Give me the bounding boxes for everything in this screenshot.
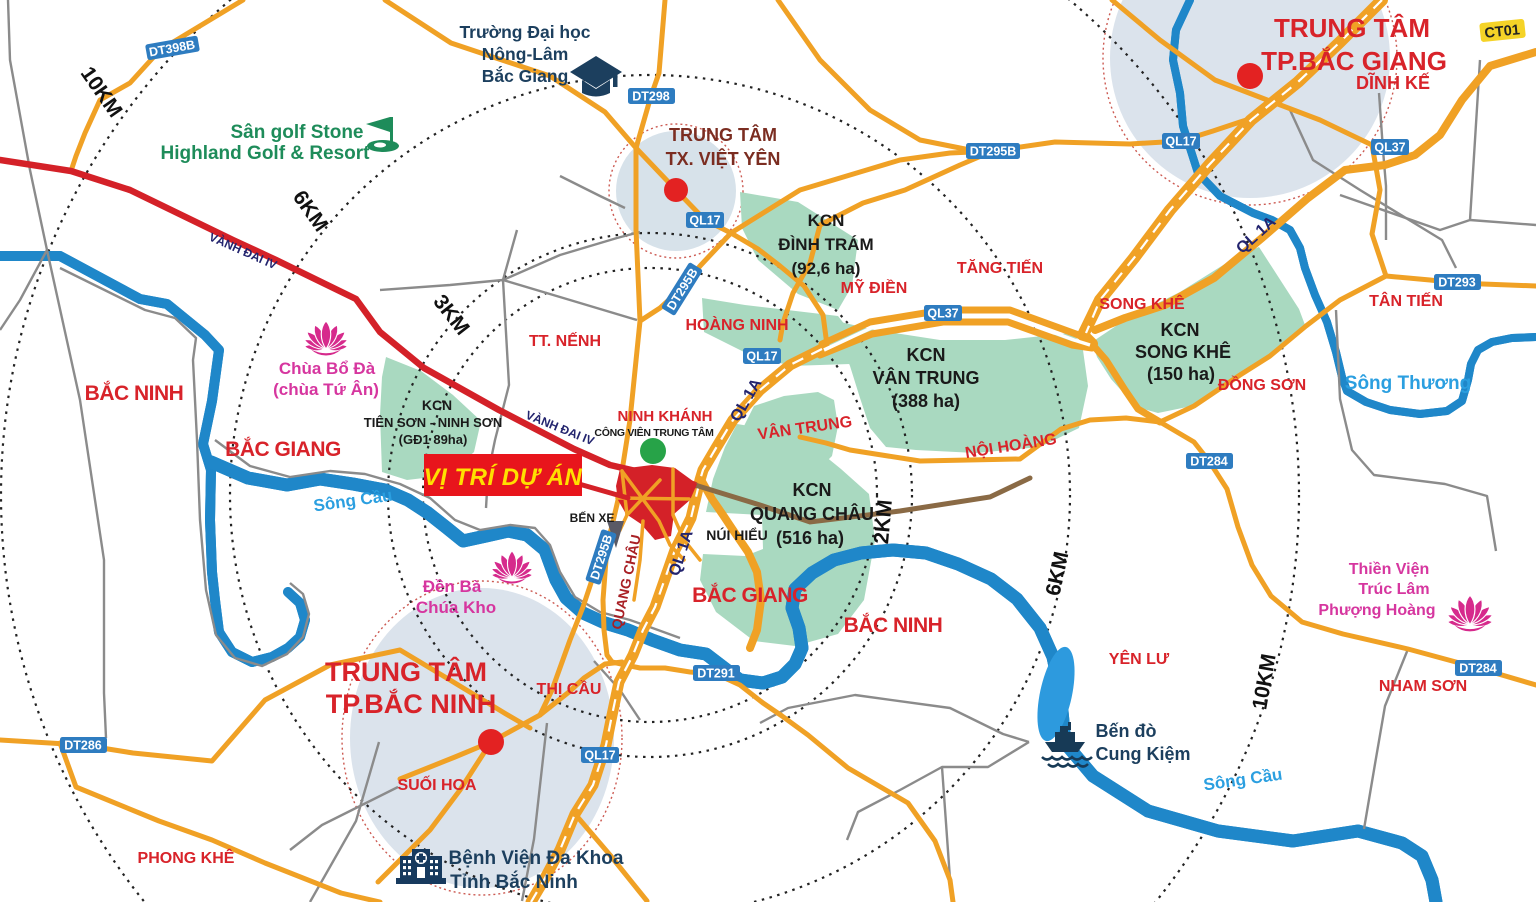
svg-text:TIÊN SƠN - NINH SƠN: TIÊN SƠN - NINH SƠN: [364, 415, 502, 430]
svg-text:Thiền Viện: Thiền Viện: [1349, 561, 1430, 578]
svg-text:BẾN XE: BẾN XE: [570, 510, 615, 525]
svg-text:Bắc Giang: Bắc Giang: [482, 65, 569, 86]
svg-text:MỸ ĐIỀN: MỸ ĐIỀN: [841, 277, 908, 297]
svg-text:Sông Thương: Sông Thương: [1345, 373, 1471, 394]
svg-text:QL37: QL37: [927, 307, 958, 321]
svg-text:SONG KHÊ: SONG KHÊ: [1135, 341, 1231, 362]
svg-text:Sân golf Stone: Sân golf Stone: [231, 122, 364, 143]
svg-text:BẮC GIANG: BẮC GIANG: [225, 437, 341, 461]
svg-text:Bến đò: Bến đò: [1096, 721, 1157, 741]
svg-text:QUANG CHÂU: QUANG CHÂU: [750, 503, 874, 524]
svg-text:BẮC NINH: BẮC NINH: [85, 381, 184, 405]
svg-text:DT284: DT284: [1459, 662, 1497, 676]
svg-text:TP.BẮC GIANG: TP.BẮC GIANG: [1261, 46, 1447, 76]
svg-text:Phượng Hoàng: Phượng Hoàng: [1318, 602, 1435, 619]
svg-text:TP.BẮC NINH: TP.BẮC NINH: [326, 688, 497, 719]
svg-text:TRUNG TÂM: TRUNG TÂM: [325, 656, 487, 687]
svg-text:ĐỒNG SƠN: ĐỒNG SƠN: [1218, 375, 1306, 394]
svg-text:TĂNG TIẾN: TĂNG TIẾN: [957, 258, 1043, 277]
svg-text:QL37: QL37: [1374, 141, 1405, 155]
svg-text:SONG KHÊ: SONG KHÊ: [1099, 294, 1185, 313]
svg-text:DT284: DT284: [1190, 455, 1228, 469]
svg-text:PHONG KHÊ: PHONG KHÊ: [138, 848, 235, 867]
svg-text:(GĐ1 89ha): (GĐ1 89ha): [399, 432, 468, 447]
svg-text:Chùa Bổ Đà: Chùa Bổ Đà: [279, 359, 376, 378]
svg-text:TX. VIỆT YÊN: TX. VIỆT YÊN: [666, 148, 781, 169]
svg-text:ĐÌNH TRÁM: ĐÌNH TRÁM: [778, 235, 873, 254]
svg-text:CÔNG VIÊN TRUNG TÂM: CÔNG VIÊN TRUNG TÂM: [594, 426, 714, 439]
svg-text:QL17: QL17: [689, 214, 720, 228]
svg-text:THỊ CẦU: THỊ CẦU: [537, 679, 602, 698]
svg-text:Đền Bà: Đền Bà: [423, 577, 482, 596]
svg-text:KCN: KCN: [1161, 320, 1200, 340]
svg-text:Bệnh Viện Đa Khoa: Bệnh Viện Đa Khoa: [449, 848, 624, 869]
svg-text:(388 ha): (388 ha): [892, 391, 960, 411]
svg-text:(150 ha): (150 ha): [1147, 364, 1215, 384]
svg-text:HOÀNG NINH: HOÀNG NINH: [685, 315, 788, 334]
svg-text:DT291: DT291: [697, 667, 735, 681]
svg-text:2KM: 2KM: [870, 499, 897, 545]
svg-text:QL17: QL17: [584, 749, 615, 763]
svg-text:(516 ha): (516 ha): [776, 528, 844, 548]
svg-text:Tỉnh Bắc Ninh: Tỉnh Bắc Ninh: [450, 871, 578, 893]
svg-text:NÚI HIỂU: NÚI HIỂU: [706, 526, 767, 543]
svg-text:KCN: KCN: [907, 345, 946, 365]
svg-text:VÂN TRUNG: VÂN TRUNG: [873, 367, 980, 388]
svg-text:TRUNG TÂM: TRUNG TÂM: [669, 124, 777, 145]
svg-text:Chúa Kho: Chúa Kho: [416, 598, 496, 617]
svg-text:VỊ TRÍ DỰ ÁN: VỊ TRÍ DỰ ÁN: [424, 463, 583, 491]
svg-text:Trường Đại học: Trường Đại học: [459, 22, 590, 42]
svg-text:SUỐI HOA: SUỐI HOA: [397, 774, 477, 794]
svg-text:DT295B: DT295B: [970, 145, 1017, 159]
svg-text:DT286: DT286: [64, 739, 102, 753]
svg-text:DT298: DT298: [632, 90, 670, 104]
svg-text:QL17: QL17: [1165, 135, 1196, 149]
svg-text:YÊN LƯ: YÊN LƯ: [1109, 649, 1170, 668]
svg-text:Nông-Lâm: Nông-Lâm: [482, 44, 569, 64]
svg-text:BẮC NINH: BẮC NINH: [844, 613, 943, 637]
svg-text:KCN: KCN: [422, 397, 452, 413]
svg-text:Cung Kiệm: Cung Kiệm: [1095, 744, 1190, 764]
svg-text:Trúc Lâm: Trúc Lâm: [1358, 581, 1429, 598]
svg-text:NINH KHÁNH: NINH KHÁNH: [618, 408, 713, 425]
svg-text:KCN: KCN: [808, 211, 845, 230]
svg-text:(92,6 ha): (92,6 ha): [792, 259, 861, 278]
svg-text:TÂN TIẾN: TÂN TIẾN: [1369, 291, 1443, 310]
svg-text:KCN: KCN: [793, 480, 832, 500]
svg-text:DĨNH KẾ: DĨNH KẾ: [1356, 72, 1430, 93]
svg-text:(chùa Tứ Ân): (chùa Tứ Ân): [273, 380, 379, 399]
svg-text:BẮC GIANG: BẮC GIANG: [692, 583, 808, 607]
svg-text:QL17: QL17: [746, 350, 777, 364]
svg-text:Highland Golf & Resort: Highland Golf & Resort: [161, 143, 371, 164]
svg-text:DT293: DT293: [1438, 276, 1476, 290]
svg-text:TRUNG TÂM: TRUNG TÂM: [1274, 13, 1430, 43]
svg-text:TT. NẾNH: TT. NẾNH: [529, 331, 601, 350]
svg-text:NHAM SƠN: NHAM SƠN: [1379, 678, 1467, 695]
